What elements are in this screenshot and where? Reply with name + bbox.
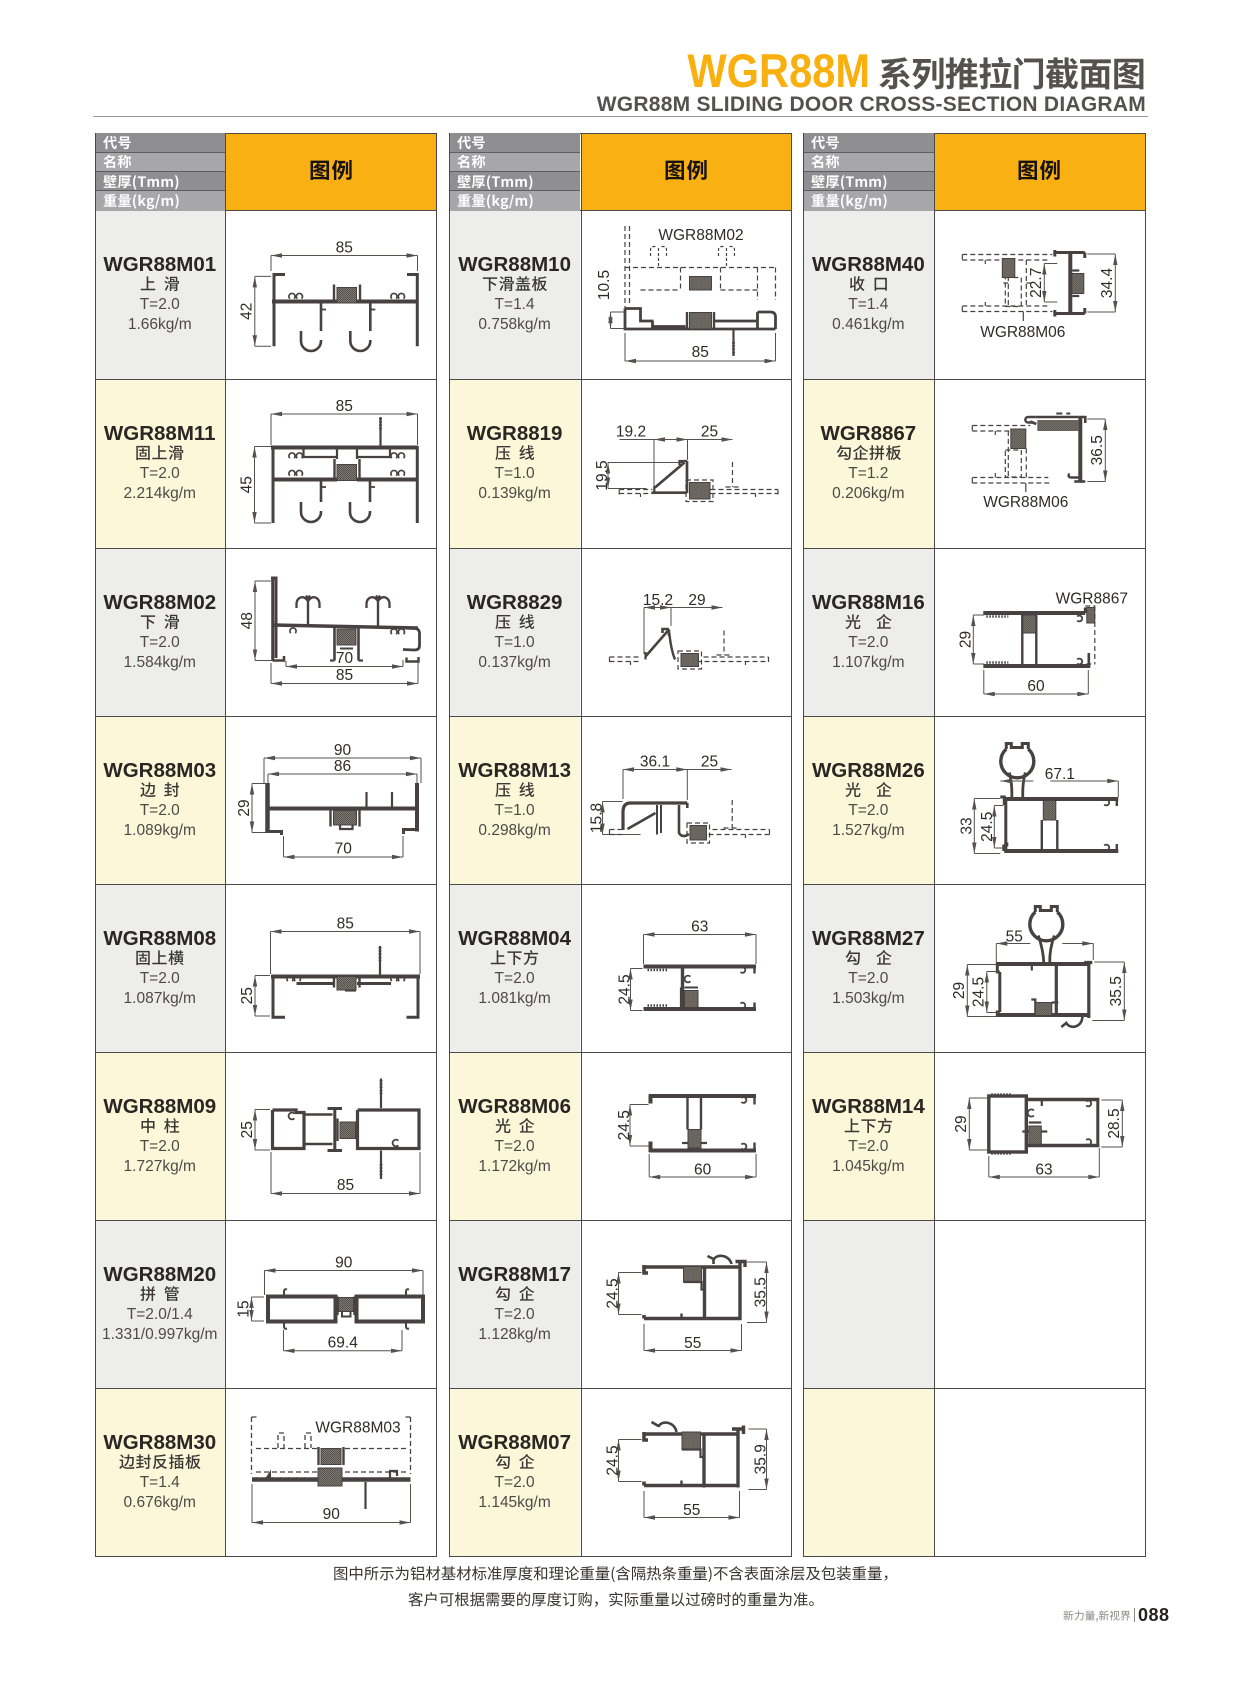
svg-text:86: 86	[334, 758, 351, 775]
svg-text:85: 85	[336, 239, 353, 256]
svg-text:22.7: 22.7	[1028, 268, 1045, 298]
svg-text:34.4: 34.4	[1099, 268, 1116, 299]
svg-text:24.5: 24.5	[604, 1445, 621, 1475]
svg-text:48: 48	[239, 612, 256, 629]
svg-text:25: 25	[239, 987, 256, 1004]
svg-text:70: 70	[335, 840, 353, 857]
svg-text:35.5: 35.5	[1108, 976, 1125, 1006]
svg-text:19.2: 19.2	[615, 423, 645, 440]
svg-text:25: 25	[700, 423, 717, 440]
svg-text:85: 85	[337, 915, 354, 932]
svg-text:55: 55	[1005, 928, 1022, 945]
svg-text:85: 85	[336, 667, 353, 684]
svg-text:24.5: 24.5	[616, 974, 633, 1004]
svg-text:55: 55	[683, 1502, 700, 1519]
svg-text:63: 63	[1035, 1161, 1052, 1178]
svg-text:33: 33	[958, 817, 975, 834]
svg-text:WGR88M02: WGR88M02	[658, 227, 743, 244]
svg-text:24.5: 24.5	[604, 1278, 621, 1308]
svg-text:15.2: 15.2	[642, 592, 672, 609]
svg-text:29: 29	[951, 982, 968, 999]
svg-text:15.8: 15.8	[588, 803, 605, 833]
svg-text:60: 60	[694, 1161, 711, 1178]
svg-text:25: 25	[700, 753, 717, 770]
svg-text:90: 90	[335, 1254, 353, 1271]
svg-text:85: 85	[336, 398, 353, 415]
svg-text:24.5: 24.5	[970, 977, 987, 1007]
svg-text:15: 15	[235, 1300, 252, 1317]
svg-text:85: 85	[337, 1177, 354, 1194]
svg-text:85: 85	[691, 344, 708, 361]
svg-text:WGR8867: WGR8867	[1055, 590, 1127, 607]
svg-text:29: 29	[957, 631, 974, 648]
svg-text:42: 42	[239, 303, 256, 320]
svg-text:70: 70	[336, 650, 354, 667]
svg-text:29: 29	[688, 592, 705, 609]
svg-text:29: 29	[953, 1115, 970, 1132]
svg-text:24.5: 24.5	[979, 812, 996, 842]
svg-text:69.4: 69.4	[328, 1334, 359, 1351]
svg-text:29: 29	[236, 799, 253, 816]
svg-text:35.9: 35.9	[752, 1444, 769, 1474]
svg-text:WGR88M03: WGR88M03	[315, 1419, 400, 1436]
svg-text:60: 60	[1027, 678, 1044, 695]
svg-text:10.5: 10.5	[595, 270, 612, 300]
svg-text:19.5: 19.5	[593, 460, 610, 490]
svg-text:45: 45	[238, 476, 255, 493]
svg-text:36.1: 36.1	[639, 753, 669, 770]
svg-text:WGR88M06: WGR88M06	[983, 494, 1068, 511]
svg-text:35.5: 35.5	[752, 1277, 769, 1307]
svg-text:90: 90	[334, 742, 352, 759]
svg-text:25: 25	[239, 1121, 256, 1138]
svg-text:63: 63	[691, 918, 708, 935]
svg-text:28.5: 28.5	[1106, 1108, 1123, 1138]
svg-text:55: 55	[684, 1335, 701, 1352]
svg-text:36.5: 36.5	[1089, 435, 1106, 465]
svg-text:24.5: 24.5	[615, 1110, 632, 1140]
svg-text:WGR88M06: WGR88M06	[980, 324, 1065, 341]
svg-text:67.1: 67.1	[1044, 766, 1074, 783]
svg-text:90: 90	[323, 1506, 341, 1523]
